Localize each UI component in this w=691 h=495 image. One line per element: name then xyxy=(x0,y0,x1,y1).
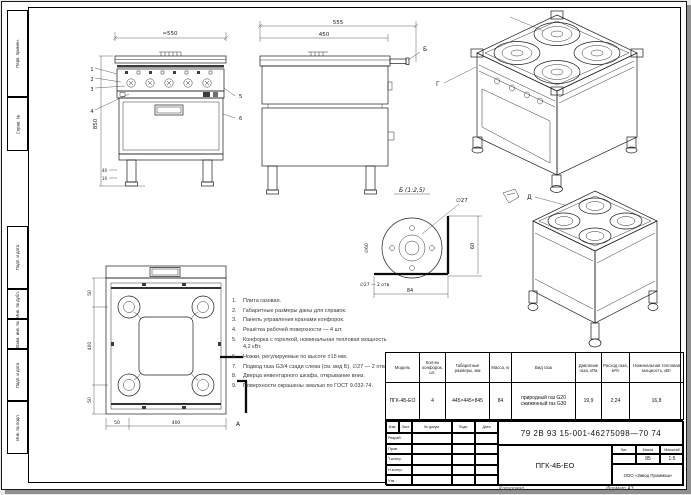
note-item: 9.Поверхности окрашены эмалью по ГОСТ 9.… xyxy=(232,383,390,390)
sign-cell xyxy=(475,475,498,486)
margin-cell: Справ. № xyxy=(7,97,28,151)
detail-dim-right: 60 xyxy=(470,243,476,249)
callout-6: 6 xyxy=(239,116,242,122)
margin-label: Взам. инв. № xyxy=(15,321,20,348)
lit-value: 1:5 xyxy=(660,454,684,464)
sign-cell xyxy=(475,454,498,465)
margin-cell: Перв. примен. xyxy=(7,10,28,97)
detail-note: ∅27 — 2 отв. xyxy=(360,282,391,288)
spec-cell: 19,9 xyxy=(576,383,602,420)
note-number: 6. xyxy=(232,354,243,361)
dim-front-leg-b: 10 xyxy=(102,176,108,181)
spec-cell: природный газ G20 сжиженный газ G30 xyxy=(512,383,576,420)
sign-cell xyxy=(412,433,452,444)
note-number: 1. xyxy=(232,298,243,305)
sign-cell xyxy=(475,433,498,444)
spec-header: Модель xyxy=(386,353,420,383)
sign-cell xyxy=(475,465,498,476)
margin-label: Инв. № подл. xyxy=(15,414,20,441)
lit-header: Лит. xyxy=(612,445,636,454)
rev-header: № докум. xyxy=(412,421,452,433)
detail-title: Б (1:2,5) xyxy=(399,187,425,194)
footer-copy-label: Копировал xyxy=(499,486,524,492)
spec-header: Расход газа, м³/ч xyxy=(602,353,630,383)
spec-header: Масса, кг xyxy=(490,353,512,383)
plan-dim-bot-mid: 400 xyxy=(172,420,181,426)
margin-cell: Взам. инв. № xyxy=(7,319,28,349)
detail-dia-small: ∅27 xyxy=(456,198,468,204)
sign-row-label: Утв. xyxy=(386,475,412,486)
margin-label: Справ. № xyxy=(15,114,20,134)
dim-front-height: 850 xyxy=(93,118,99,129)
callout-1: 1 xyxy=(90,67,93,73)
spec-cell: 4 xyxy=(420,383,446,420)
note-item: 2.Габаритные размеры даны для справок. xyxy=(232,308,390,315)
note-text: Ножки, регулируемые по высоте ±15 мм. xyxy=(243,354,347,361)
product-designation: ПГК-4Б-ЕО xyxy=(498,445,612,486)
note-item: 6.Ножки, регулируемые по высоте ±15 мм. xyxy=(232,354,390,361)
sign-cell xyxy=(452,475,475,486)
detail-dia-big: ∅60 xyxy=(364,243,370,253)
note-text: Поверхности окрашены эмалью по ГОСТ 9.03… xyxy=(243,383,373,390)
note-number: 3. xyxy=(232,317,243,324)
view-label-d: Д xyxy=(527,194,532,201)
note-number: 4. xyxy=(232,327,243,334)
sign-cell xyxy=(452,465,475,476)
sign-cell xyxy=(452,454,475,465)
lit-value: 85 xyxy=(636,454,660,464)
sign-cell xyxy=(412,465,452,476)
spec-header: Кол-во конфорок, шт. xyxy=(420,353,446,383)
margin-cell: Инв. № подл. xyxy=(7,401,28,454)
note-text: Габаритные размеры даны для справок. xyxy=(243,308,346,315)
sign-cell xyxy=(475,444,498,455)
margin-label: Инв. № дубл. xyxy=(15,291,20,318)
spec-header-row: Модель Кол-во конфорок, шт. Габаритные р… xyxy=(386,353,684,383)
callout-4: 4 xyxy=(90,109,93,115)
rev-header: Дата xyxy=(475,421,498,433)
callout-2: 2 xyxy=(90,77,93,83)
spec-cell: ПГК-4Б-ЕО xyxy=(386,383,420,420)
drawing-sheet: Перв. примен. Справ. № Подп. и дата Инв.… xyxy=(1,1,687,490)
callout-3: 3 xyxy=(90,87,93,93)
lit-header: Масса xyxy=(636,445,660,454)
sign-cell xyxy=(412,454,452,465)
note-number: 7. xyxy=(232,364,243,371)
note-number: 2. xyxy=(232,308,243,315)
front-view: ≈550 850 40 xyxy=(85,24,245,229)
margin-cell: Подп. и дата xyxy=(7,349,28,401)
note-text: Дверца инвентарного шкафа, открывание вн… xyxy=(243,373,365,380)
note-item: 1.Плита газовая. xyxy=(232,298,390,305)
spec-header: Габаритные размеры, мм xyxy=(446,353,490,383)
isometric-view-top: Г xyxy=(422,5,687,205)
notes-list: 1.Плита газовая. 2.Габаритные размеры да… xyxy=(232,298,390,393)
lit-value xyxy=(612,454,636,464)
margin-label: Перв. примен. xyxy=(15,39,20,68)
sign-cell xyxy=(452,444,475,455)
note-number: 8. xyxy=(232,373,243,380)
spec-cell: 2,24 xyxy=(602,383,630,420)
dim-front-leg-a: 40 xyxy=(102,168,108,173)
plan-dim-left-top: 50 xyxy=(87,290,93,296)
rev-header: Лист xyxy=(399,421,412,433)
dim-side-outer: 555 xyxy=(333,20,344,26)
note-text: Конфорка с горелкой, номинальная теплова… xyxy=(243,337,390,351)
plan-view: А 50 400 50 50 400 xyxy=(84,262,249,442)
spec-cell: 84 xyxy=(490,383,512,420)
note-text: Решётка рабочей поверхности — 4 шт. xyxy=(243,327,342,334)
note-number: 5. xyxy=(232,337,243,351)
detail-view: Б (1:2,5) ∅27 ∅60 60 84 ∅27 — 2 отв. xyxy=(360,182,500,310)
sign-row-label: Т.контр. xyxy=(386,454,412,465)
company-name: ООО «Завод Проммаш» xyxy=(612,464,684,486)
plan-dim-bot-left: 50 xyxy=(114,420,120,426)
sign-cell xyxy=(412,475,452,486)
sign-cell xyxy=(412,444,452,455)
plan-section-label: А xyxy=(236,421,241,428)
spec-data-row: ПГК-4Б-ЕО 4 445×445×845 84 природный газ… xyxy=(386,383,684,420)
note-number: 9. xyxy=(232,383,243,390)
title-block: Изм. Лист № докум. Подп. Дата Разраб. Пр… xyxy=(385,420,683,485)
lit-header: Масштаб xyxy=(660,445,684,454)
footer-format-label: Формат А3 xyxy=(606,486,633,492)
detail-dim-bottom: 84 xyxy=(407,288,413,294)
doc-number: 79 2В 93 15-001-46275098—70 74 xyxy=(498,421,684,445)
rev-header: Изм. xyxy=(386,421,399,433)
note-item: 4.Решётка рабочей поверхности — 4 шт. xyxy=(232,327,390,334)
sign-row-label: Пров. xyxy=(386,444,412,455)
spec-table: Модель Кол-во конфорок, шт. Габаритные р… xyxy=(385,352,684,420)
sign-cell xyxy=(452,433,475,444)
dim-front-width: ≈550 xyxy=(162,31,178,37)
margin-label: Подп. и дата xyxy=(15,245,20,270)
margin-label: Подп. и дата xyxy=(15,362,20,387)
isometric-view-bottom: Д xyxy=(495,183,691,369)
margin-cell: Подп. и дата xyxy=(7,226,28,289)
plan-dim-left-bot: 50 xyxy=(87,397,93,403)
sign-row-label: Н.контр. xyxy=(386,465,412,476)
view-label-g: Г xyxy=(436,81,440,88)
note-item: 5.Конфорка с горелкой, номинальная тепло… xyxy=(232,337,390,351)
dim-side-inner: 450 xyxy=(319,32,330,38)
spec-header: Давление газа, кПа xyxy=(576,353,602,383)
note-item: 7.Подвод газа G3/4 сзади слева (см. вид … xyxy=(232,364,390,371)
spec-header: Вид газа xyxy=(512,353,576,383)
margin-cell: Инв. № дубл. xyxy=(7,289,28,319)
note-item: 8.Дверца инвентарного шкафа, открывание … xyxy=(232,373,390,380)
spec-header: Номинальная тепловая мощность, кВт xyxy=(630,353,684,383)
callout-5: 5 xyxy=(239,94,242,100)
note-text: Плита газовая. xyxy=(243,298,281,305)
spec-cell: 16,8 xyxy=(630,383,684,420)
note-item: 3.Панель управления кранами конфорок. xyxy=(232,317,390,324)
plan-dim-left-mid: 400 xyxy=(87,342,93,351)
spec-cell: 445×445×845 xyxy=(446,383,490,420)
rev-header: Подп. xyxy=(452,421,475,433)
note-text: Подвод газа G3/4 сзади слева (см. вид Б)… xyxy=(243,364,386,371)
sign-row-label: Разраб. xyxy=(386,433,412,444)
note-text: Панель управления кранами конфорок. xyxy=(243,317,344,324)
